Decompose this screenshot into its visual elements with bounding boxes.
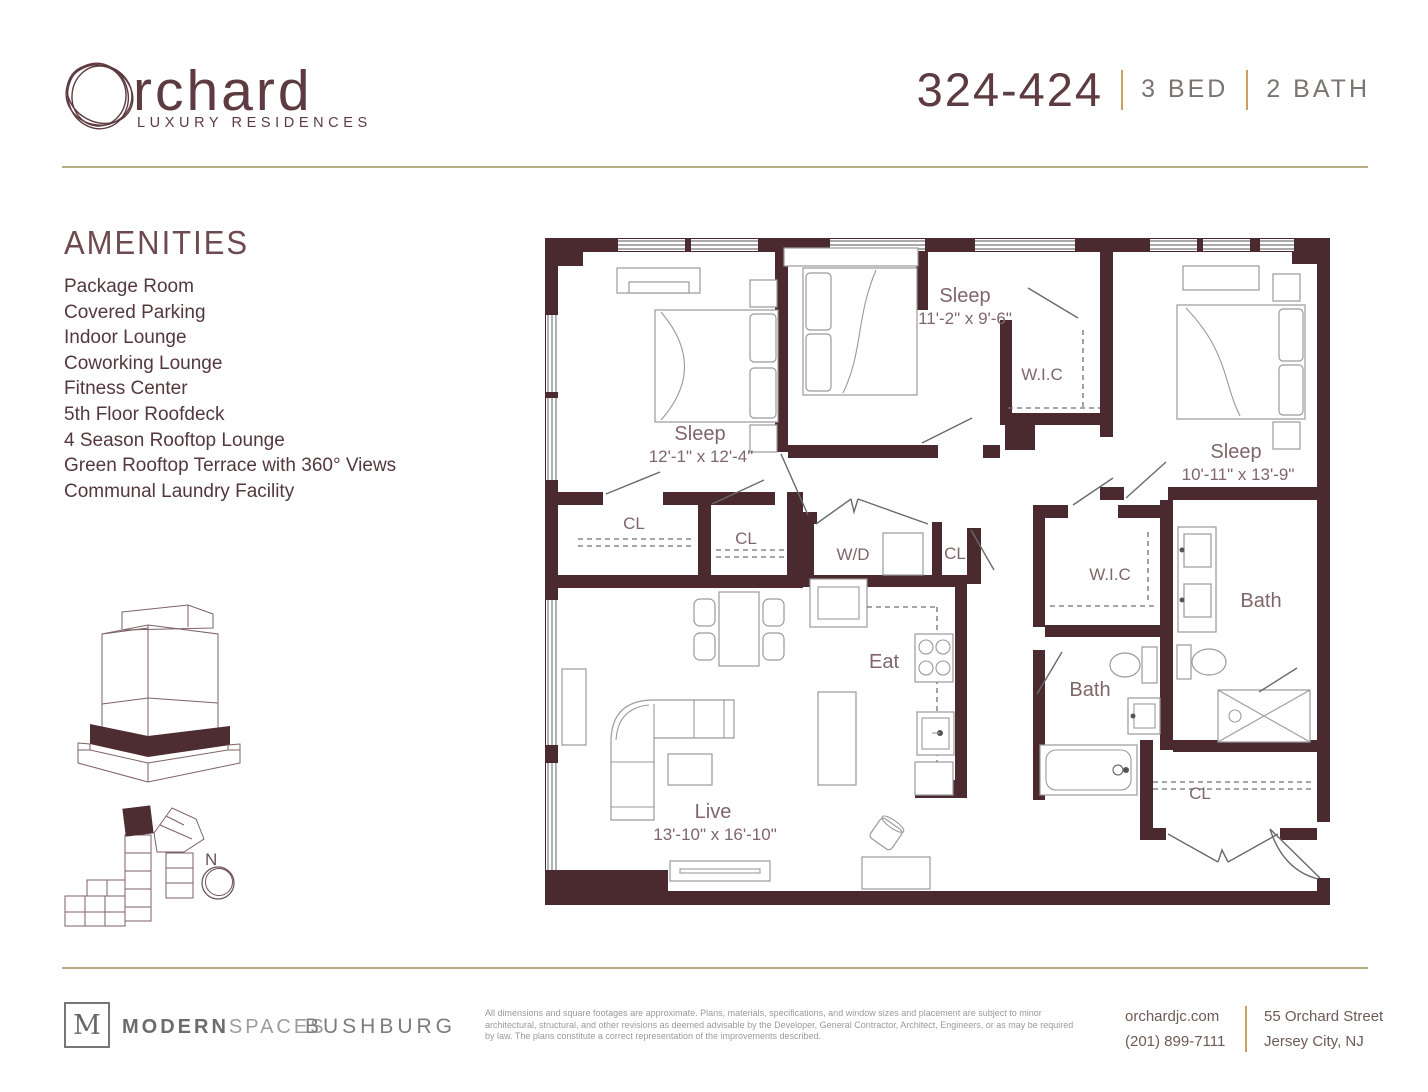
stove: [915, 634, 953, 682]
tv-console: [670, 861, 770, 881]
amenities-list: Package Room Covered Parking Indoor Loun…: [64, 274, 396, 504]
room-label-wd: W/D: [836, 545, 869, 564]
unit-baths: 2 BATH: [1266, 75, 1370, 104]
nightstand: [750, 280, 777, 307]
room-label-cl2: CL: [735, 529, 757, 548]
door: [606, 472, 660, 494]
modern-text: MODERN: [122, 1016, 229, 1038]
room-label-bath1: Bath: [1069, 679, 1110, 701]
floorplan-flyer-page: { "brand": { "name_rest": "rchard", "tag…: [0, 0, 1428, 1092]
divider: [1121, 70, 1123, 110]
bed: [1177, 305, 1305, 419]
orchard-logo-mark: [60, 56, 138, 134]
contact-address: 55 Orchard Street Jersey City, NJ: [1264, 1004, 1383, 1054]
building-axon-diagram: [70, 598, 255, 793]
cabinet: [915, 762, 953, 795]
room-label-sleep2: Sleep: [939, 285, 990, 307]
contact-divider: [1245, 1006, 1247, 1052]
coffee-table: [668, 754, 712, 785]
toilet: [1110, 647, 1157, 683]
room-dims-sleep3: 10'-11" x 13'-9": [1182, 465, 1295, 484]
window: [546, 315, 558, 480]
amenity-item: Fitness Center: [64, 376, 396, 402]
desk: [862, 813, 930, 889]
room-label-eat: Eat: [869, 651, 899, 673]
phone-number: (201) 899-7111: [1125, 1029, 1225, 1054]
dining-table: [694, 592, 784, 666]
highlighted-floor-band: [90, 724, 230, 757]
amenity-item: Communal Laundry Facility: [64, 479, 396, 505]
amenity-item: Covered Parking: [64, 300, 396, 326]
room-label-cl1: CL: [623, 514, 645, 533]
amenity-item: Green Rooftop Terrace with 360° Views: [64, 453, 396, 479]
vanity-sink: [1128, 698, 1160, 734]
door: [922, 418, 972, 443]
room-label-sleep3: Sleep: [1210, 441, 1261, 463]
bathtub: [1040, 745, 1137, 795]
window: [1260, 239, 1294, 251]
brand-tagline: LUXURY RESIDENCES: [137, 115, 372, 131]
island: [818, 692, 856, 785]
unit-header: 324-424 3 BED 2 BATH: [917, 62, 1370, 117]
modern-spaces-logo: M: [64, 1002, 110, 1048]
amenities-heading: AMENITIES: [64, 224, 249, 263]
room-dims-sleep2: 11'-2" x 9'-6": [918, 309, 1012, 328]
address-line2: Jersey City, NJ: [1264, 1029, 1383, 1054]
washer-dryer: [883, 533, 923, 575]
nightstand: [750, 425, 777, 452]
footer-rule: [62, 967, 1368, 969]
french-door: [562, 669, 586, 745]
room-dims-sleep1: 12'-1" x 12'-4": [649, 447, 754, 466]
contact-web-phone: orchardjc.com (201) 899-7111: [1125, 1004, 1225, 1054]
window: [1150, 239, 1250, 251]
amenity-item: 4 Season Rooftop Lounge: [64, 428, 396, 454]
amenity-item: Indoor Lounge: [64, 325, 396, 351]
bed: [655, 310, 778, 422]
window: [546, 763, 558, 870]
header-rule: [62, 166, 1368, 168]
nightstand: [1273, 422, 1300, 449]
room-label-wic2: W.I.C: [1089, 565, 1131, 584]
bushburg-wordmark: BUSHBURG: [305, 1015, 456, 1039]
window: [546, 600, 558, 745]
compass-icon: N: [202, 850, 234, 899]
room-label-cl4: CL: [1189, 784, 1211, 803]
highlighted-unit: [122, 805, 153, 836]
door: [1259, 668, 1297, 692]
room-label-bath2: Bath: [1240, 590, 1281, 612]
nightstand: [1273, 274, 1300, 301]
shelf: [784, 248, 918, 266]
unit-number: 324-424: [917, 62, 1104, 117]
unit-beds: 3 BED: [1141, 75, 1228, 104]
amenity-item: Coworking Lounge: [64, 351, 396, 377]
door: [1028, 288, 1078, 318]
toilet: [1177, 645, 1226, 679]
door: [1126, 462, 1166, 498]
bed: [803, 268, 917, 395]
dresser: [1183, 266, 1259, 290]
floor-plan: .wall { fill:#4a2a2f; } .furn { fill:#ff…: [528, 222, 1340, 918]
room-dims-live: 13'-10" x 16'-10": [653, 825, 776, 844]
window: [618, 239, 758, 251]
compass-north-label: N: [205, 850, 217, 869]
room-label-cl3: CL: [944, 544, 966, 563]
amenity-item: 5th Floor Roofdeck: [64, 402, 396, 428]
room-label-wic1: W.I.C: [1021, 365, 1063, 384]
website-link[interactable]: orchardjc.com: [1125, 1004, 1225, 1029]
closet-double-doors: [1168, 834, 1278, 862]
double-vanity: [1178, 527, 1216, 632]
divider: [1246, 70, 1248, 110]
kitchen-sink: [917, 712, 954, 755]
amenity-item: Package Room: [64, 274, 396, 300]
shower: [1218, 690, 1310, 742]
key-plan: N: [62, 795, 272, 940]
address-line1: 55 Orchard Street: [1264, 1004, 1383, 1029]
room-label-sleep1: Sleep: [674, 423, 725, 445]
room-label-live: Live: [695, 801, 732, 823]
modern-spaces-wordmark: MODERNSPACES: [122, 1016, 327, 1039]
window: [975, 239, 1075, 251]
legal-disclaimer: All dimensions and square footages are a…: [485, 1008, 1085, 1043]
